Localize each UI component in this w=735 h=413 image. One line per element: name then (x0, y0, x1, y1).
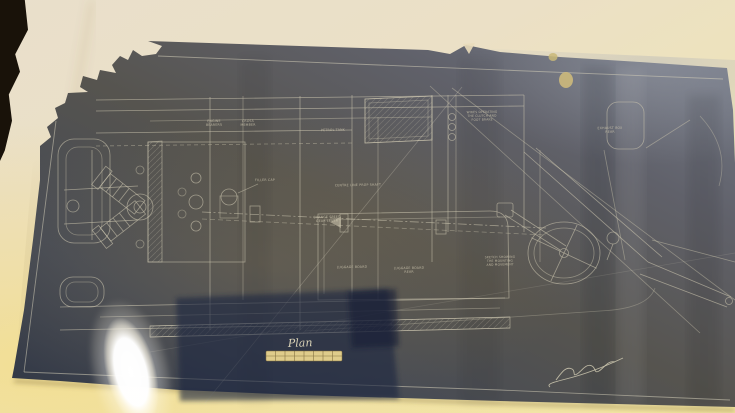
blueprint-scene: ENGINEBEARERSCROSSMEMBERPETROL TANKEXHAU… (0, 0, 735, 413)
blueprint-label: SKETCH SHOWINGTHE MOUNTINGAND MOVEMENT (485, 255, 516, 267)
blueprint-label: CROSSMEMBER (240, 119, 256, 127)
photo-of-blueprint: ENGINEBEARERSCROSSMEMBERPETROL TANKEXHAU… (0, 0, 735, 413)
blueprint-label: LUGGAGE BOARD (337, 265, 368, 270)
blueprint-label: PETROL TANK (321, 128, 346, 132)
blueprint-label: FILLER CAP (255, 178, 275, 182)
scale-bar (266, 351, 342, 361)
blueprint-label: CHANGE SPEEDGEAR LEVER (313, 215, 341, 223)
blueprint-label: ENGINEBEARERS (206, 119, 222, 127)
blueprint-label: CENTRE LINE PROP SHAFT (335, 183, 381, 188)
plan-title: Plan (287, 336, 313, 350)
